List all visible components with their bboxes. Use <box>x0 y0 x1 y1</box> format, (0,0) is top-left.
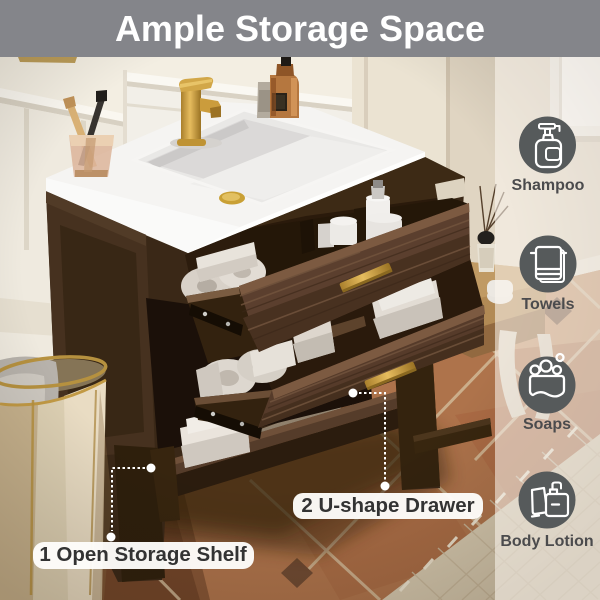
svg-text:Soaps: Soaps <box>523 416 571 433</box>
svg-text:Shampoo: Shampoo <box>512 177 585 194</box>
svg-text:Body Lotion: Body Lotion <box>500 533 593 550</box>
svg-text:2 U-shape Drawer: 2 U-shape Drawer <box>301 494 474 517</box>
svg-text:Towels: Towels <box>521 296 574 313</box>
svg-text:Ample Storage Space: Ample Storage Space <box>115 8 485 49</box>
svg-text:1 Open Storage Shelf: 1 Open Storage Shelf <box>39 543 246 566</box>
